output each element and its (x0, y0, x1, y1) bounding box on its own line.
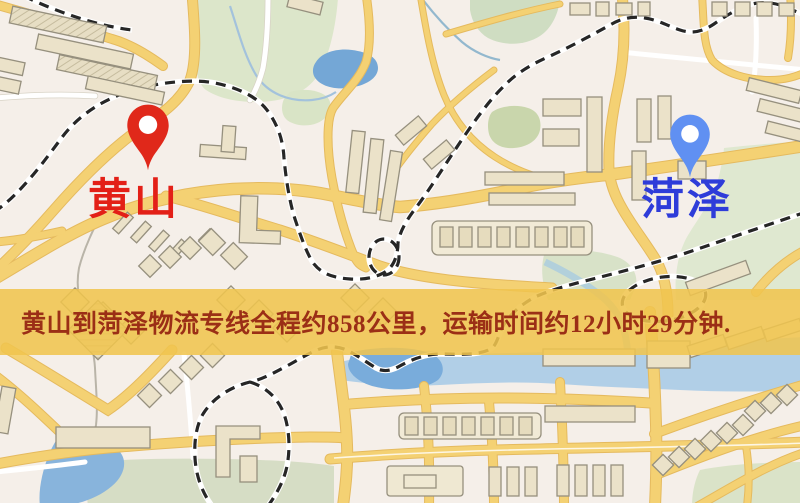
destination-label: 菏泽 (641, 179, 733, 222)
origin-map-pin[interactable] (125, 102, 171, 174)
destination-map-pin[interactable] (668, 110, 712, 183)
blue-map-pin-icon (668, 110, 712, 183)
route-info-text: 黄山到菏泽物流专线全程约858公里，运输时间约12小时29分钟. (21, 304, 731, 340)
red-map-pin-icon (125, 102, 171, 174)
origin-label: 黄山 (88, 179, 180, 222)
route-info-banner: 黄山到菏泽物流专线全程约858公里，运输时间约12小时29分钟. (0, 289, 800, 355)
map-page: 黄山 菏泽 黄山到菏泽物流专线全程约858公里，运输时间约12小时29分钟. (0, 0, 800, 503)
map-canvas (0, 0, 800, 503)
